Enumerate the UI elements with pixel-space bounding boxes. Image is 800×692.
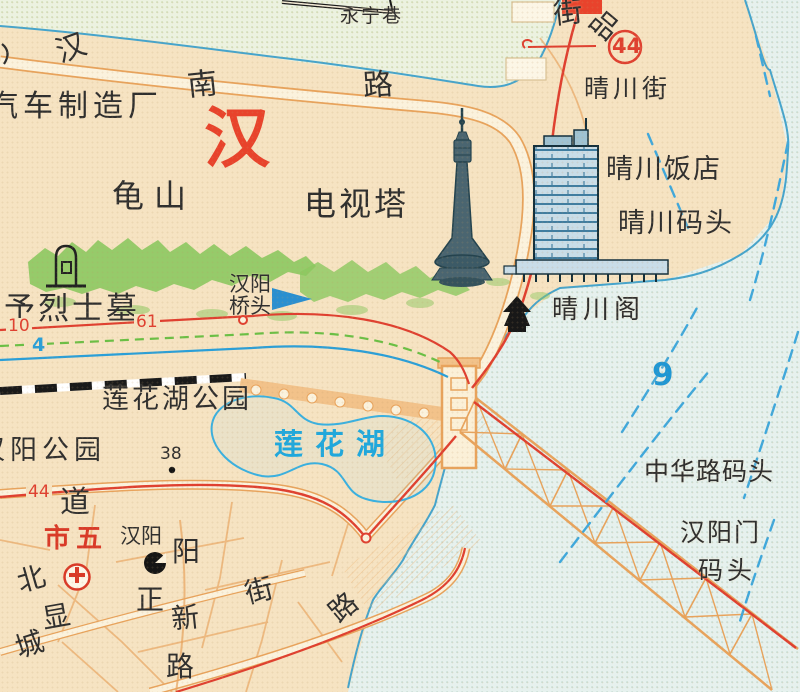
label-qingchuan-pavilion: 晴川阁	[552, 297, 645, 323]
label-hanyang-big-red: 汉	[204, 106, 270, 172]
label-dao: 道	[60, 488, 90, 518]
label-ferry-route-9: 9	[652, 360, 674, 391]
label-jie-xianzheng: 街	[242, 574, 276, 608]
scanned-city-map: 汉南路永宁巷街品晴川街汽车制造厂汉龟山电视塔晴川饭店晴川码头予烈士墓汉阳桥头晴川…	[0, 0, 800, 692]
label-qingchuan-hotel: 晴川饭店	[606, 156, 722, 183]
label-hannan-road-char1: 汉	[52, 30, 90, 68]
map-labels: 汉南路永宁巷街品晴川街汽车制造厂汉龟山电视塔晴川饭店晴川码头予烈士墓汉阳桥头晴川…	[0, 0, 800, 692]
label-lu-yangxin: 路	[166, 653, 194, 681]
label-bei: 北	[14, 562, 49, 597]
label-hanyang-park: 汉阳公园	[0, 437, 106, 464]
label-xin: 新	[170, 603, 201, 634]
label-qingchuan-wharf: 晴川码头	[618, 210, 734, 237]
label-hanyang-qiaotou-2: 桥头	[229, 296, 271, 317]
label-lianhua-lake-park: 莲花湖公园	[102, 386, 252, 413]
label-xian: 显	[40, 601, 72, 633]
marker-route-4: 4	[30, 336, 47, 355]
label-yongning-lane: 永宁巷	[340, 7, 403, 26]
marker-route-44-avenue: 44	[26, 484, 52, 501]
label-spot-height-38: 38	[160, 446, 182, 463]
label-jie-top: 街	[552, 0, 584, 29]
label-hanyang-qiaotou-1: 汉阳	[229, 274, 271, 295]
label-zheng: 正	[136, 586, 164, 614]
label-hanyang-station: 汉阳	[120, 526, 162, 547]
marker-route-61: 61	[134, 314, 160, 331]
label-shiwu-hospital: 市五	[44, 526, 108, 552]
label-qingchuan-street: 晴川街	[584, 76, 671, 101]
label-hannan-road-char2: 南	[186, 69, 219, 102]
label-cheng: 城	[12, 627, 47, 662]
label-auto-factory: 汽车制造厂	[0, 92, 163, 122]
label-hanyangmen-wharf-1: 汉阳门	[680, 520, 761, 545]
label-guishan: 龟山	[112, 180, 196, 212]
label-yang: 阳	[172, 538, 200, 566]
label-hanyangmen-wharf-2: 码头	[698, 558, 756, 583]
label-lianhua-lake: 莲花湖	[274, 430, 397, 459]
label-hannan-road-char3: 路	[362, 70, 394, 102]
label-lu-riverside: 路	[324, 588, 363, 627]
label-zhonghua-wharf: 中华路码头	[644, 459, 774, 484]
marker-route-44-circled: 44	[612, 36, 641, 57]
marker-route-10: 10	[6, 318, 32, 335]
label-tv-tower: 电视塔	[304, 188, 409, 220]
